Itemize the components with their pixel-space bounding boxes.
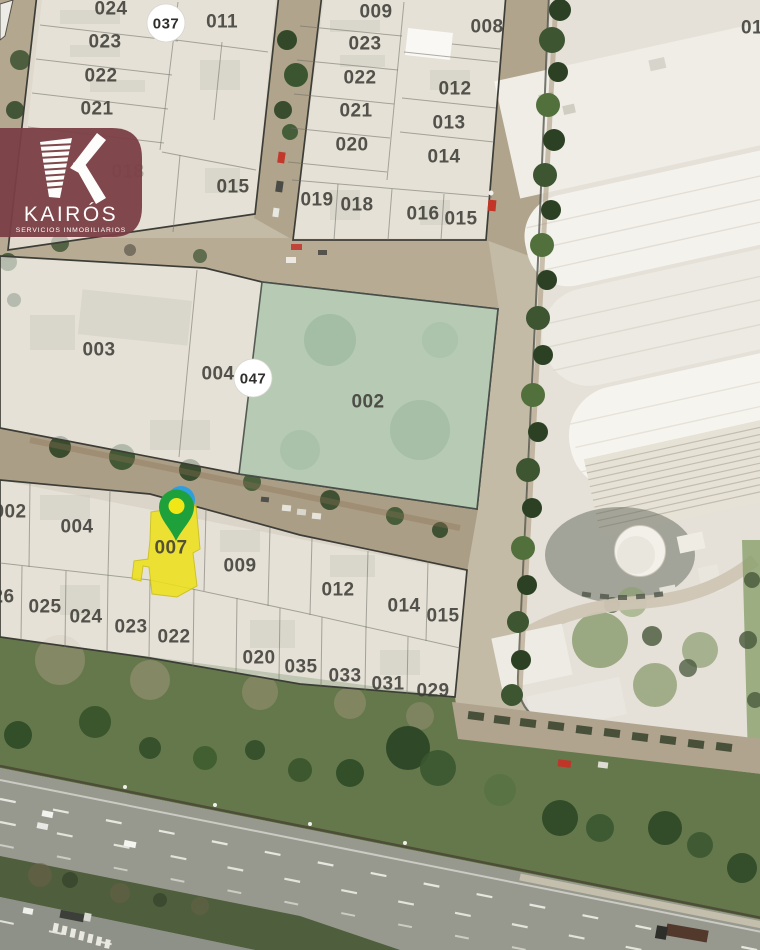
parcel-label-007: 007 (155, 538, 188, 559)
parcel-label-016: 016 (407, 204, 440, 225)
parcel-label-003: 003 (83, 340, 116, 361)
parcel-label-029: 029 (417, 681, 450, 702)
parcel-blocks (0, 0, 506, 697)
parcel-label-020: 020 (336, 135, 369, 156)
parcel-label-012: 012 (439, 79, 472, 100)
parcel-label-014: 014 (428, 147, 461, 168)
parcel-label-013: 013 (433, 113, 466, 134)
parcel-label-004: 004 (202, 364, 235, 385)
parcel-badge-037[interactable]: 037 (147, 4, 185, 42)
parcel-label-01: 01 (741, 18, 760, 39)
parcel-label-022: 022 (158, 627, 191, 648)
badge-037-label: 037 (153, 16, 180, 33)
parcel-label-033: 033 (329, 666, 362, 687)
parcel-label-023: 023 (349, 34, 382, 55)
brand-name: KAIRÓS (24, 203, 118, 226)
parcel-label-022: 022 (85, 66, 118, 87)
parcel-label-021: 021 (81, 99, 114, 120)
parcel-label-009: 009 (360, 2, 393, 23)
parcel-label-004: 004 (61, 517, 94, 538)
parcel-label-014: 014 (388, 596, 421, 617)
parcel-label-018: 018 (341, 195, 374, 216)
parcel-label-023: 023 (115, 617, 148, 638)
parcel-label-035: 035 (285, 657, 318, 678)
parcel-label-002: 002 (0, 502, 26, 523)
map-canvas[interactable]: 0240110230220210180150090080230220120210… (0, 0, 760, 950)
parcel-label-009: 009 (224, 556, 257, 577)
parcel-label-021: 021 (340, 101, 373, 122)
parcel-label-022: 022 (344, 68, 377, 89)
brand-tagline: SERVICIOS INMOBILIARIOS (16, 227, 126, 234)
satellite-map: 0240110230220210180150090080230220120210… (0, 0, 760, 950)
parcel-label-026: 026 (0, 587, 14, 608)
parcel-label-015: 015 (445, 209, 478, 230)
parcel-label-011: 011 (206, 12, 238, 33)
parcel-label-023: 023 (89, 32, 122, 53)
parcel-label-024: 024 (95, 0, 128, 20)
parcel-label-012: 012 (322, 580, 355, 601)
parcel-label-020: 020 (243, 648, 276, 669)
parcel-label-019: 019 (301, 190, 334, 211)
pin-center-dot (169, 498, 185, 514)
parcel-label-031: 031 (372, 674, 405, 695)
parcel-label-025: 025 (29, 597, 62, 618)
parcel-label-024: 024 (70, 607, 103, 628)
parcel-label-015: 015 (217, 177, 250, 198)
parcel-label-015: 015 (427, 606, 460, 627)
parcel-label-008: 008 (471, 17, 504, 38)
brand-logo: KAIRÓS SERVICIOS INMOBILIARIOS (0, 128, 142, 237)
badge-047-label: 047 (240, 371, 267, 388)
parcel-badge-047[interactable]: 047 (234, 359, 272, 397)
parcel-label-002: 002 (352, 392, 385, 413)
